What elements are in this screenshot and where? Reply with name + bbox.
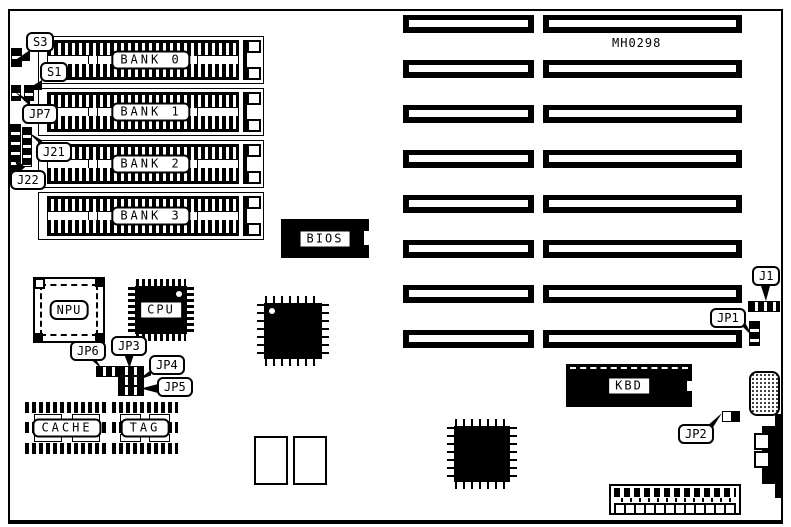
part-number: MH0298 [612, 36, 661, 50]
slot-opening [549, 155, 736, 162]
socket-bracket [247, 223, 261, 236]
cache-chips: CACHE [25, 402, 109, 454]
isa-slot-long [543, 60, 742, 78]
bank1-label: BANK 1 [111, 103, 190, 122]
jumper-j1 [748, 301, 780, 312]
bios-label: BIOS [301, 231, 350, 246]
isa-slot-long [543, 240, 742, 258]
power-connector [609, 484, 741, 515]
chip-row-marker [570, 367, 688, 369]
slot-opening [409, 110, 528, 117]
slot-opening [409, 245, 528, 252]
cpu-label: CPU [141, 303, 181, 318]
slot-opening [549, 110, 736, 117]
simm-socket-bank0: BANK 0 [38, 36, 264, 84]
corner-mark [34, 278, 45, 289]
cache-label: CACHE [32, 419, 101, 438]
callout-jp7: JP7 [22, 104, 58, 124]
socket-bracket [247, 67, 261, 80]
connector-pin-block [754, 451, 770, 468]
slot-opening [409, 335, 528, 342]
callout-jp1: JP1 [710, 308, 746, 328]
connector-pins [614, 503, 736, 515]
dip-row [112, 402, 178, 413]
corner-mark [95, 278, 104, 287]
slot-opening [549, 290, 736, 297]
isa-slot-short [403, 15, 534, 33]
isa-slot-short [403, 285, 534, 303]
callout-j22: J22 [10, 170, 46, 190]
connector-pins [614, 488, 736, 497]
jumper-jp4 [118, 376, 144, 386]
simm-socket-bank2: BANK 2 [38, 140, 264, 188]
simm-socket-bank1: BANK 1 [38, 88, 264, 136]
socket-bracket [247, 171, 261, 184]
isa-slot-short [403, 240, 534, 258]
kbd-label: KBD [609, 378, 649, 393]
socket-bracket [247, 196, 261, 209]
isa-slot-long [543, 195, 742, 213]
jumper-jp5 [118, 386, 144, 396]
callout-jp3: JP3 [111, 336, 147, 356]
isa-slot-long [543, 15, 742, 33]
slot-opening [549, 65, 736, 72]
bank0-label: BANK 0 [111, 51, 190, 70]
oscillator-socket [293, 436, 327, 485]
chip-pins [321, 304, 329, 358]
isa-slot-long [543, 330, 742, 348]
dip-row [25, 402, 109, 413]
isa-slot-short [403, 330, 534, 348]
chip-pins [455, 481, 509, 489]
chip-notch [687, 381, 692, 391]
slot-opening [549, 20, 736, 27]
dip-row [25, 443, 109, 454]
jumper-strip-j21 [22, 127, 32, 167]
keyboard-din-connector [749, 371, 780, 416]
cpu-chip: CPU [128, 279, 194, 341]
chip-notch [364, 231, 369, 245]
bank3-label: BANK 3 [111, 207, 190, 226]
slot-opening [409, 155, 528, 162]
corner-mark [34, 333, 43, 342]
callout-jp6: JP6 [70, 341, 106, 361]
jumper-jp6 [96, 366, 120, 377]
pin1-dot [269, 308, 275, 314]
simm-socket-bank3: BANK 3 [38, 192, 264, 240]
kbd-controller-chip: KBD [566, 364, 692, 407]
isa-slot-short [403, 105, 534, 123]
dip-row [112, 443, 178, 454]
callout-jp5: JP5 [157, 377, 193, 397]
jumper-jp2 [722, 411, 740, 422]
io-controller-chip [447, 419, 517, 489]
slot-opening [549, 200, 736, 207]
slot-opening [409, 20, 528, 27]
isa-slot-long [543, 105, 742, 123]
callout-s1: S1 [40, 62, 68, 82]
socket-bracket [247, 144, 261, 157]
callout-jp2: JP2 [678, 424, 714, 444]
chipset-chip [257, 296, 329, 366]
callout-j21: J21 [36, 142, 72, 162]
chip-pins [265, 358, 321, 366]
slot-opening [409, 65, 528, 72]
chip-pins [509, 427, 517, 481]
bank2-label: BANK 2 [111, 155, 190, 174]
isa-slot-short [403, 150, 534, 168]
socket-bracket [247, 119, 261, 132]
motherboard-diagram: MH0298 BANK 0 BANK 1 BANK 2 BANK 3 [0, 0, 791, 527]
bios-chip: BIOS [281, 219, 369, 258]
oscillator-socket [254, 436, 288, 485]
tag-chips: TAG [112, 402, 178, 454]
connector-pin-block [754, 433, 770, 450]
callout-s3: S3 [26, 32, 54, 52]
callout-jp4: JP4 [149, 355, 185, 375]
slot-opening [549, 335, 736, 342]
npu-label: NPU [50, 300, 89, 320]
slot-opening [409, 200, 528, 207]
jumper-jp3 [118, 366, 144, 376]
npu-socket: NPU [33, 277, 105, 343]
jumper-jp7 [11, 85, 21, 101]
isa-slot-long [543, 285, 742, 303]
slot-opening [549, 245, 736, 252]
tag-label: TAG [121, 419, 170, 438]
isa-slot-short [403, 195, 534, 213]
chip-pins [186, 287, 194, 333]
slot-opening [409, 290, 528, 297]
connector-pins [614, 498, 736, 502]
chip-body [454, 426, 510, 482]
isa-slot-short [403, 60, 534, 78]
socket-bracket [247, 92, 261, 105]
socket-bracket [247, 40, 261, 53]
isa-slot-long [543, 150, 742, 168]
pin1-dot [176, 291, 182, 297]
callout-j1: J1 [752, 266, 780, 286]
